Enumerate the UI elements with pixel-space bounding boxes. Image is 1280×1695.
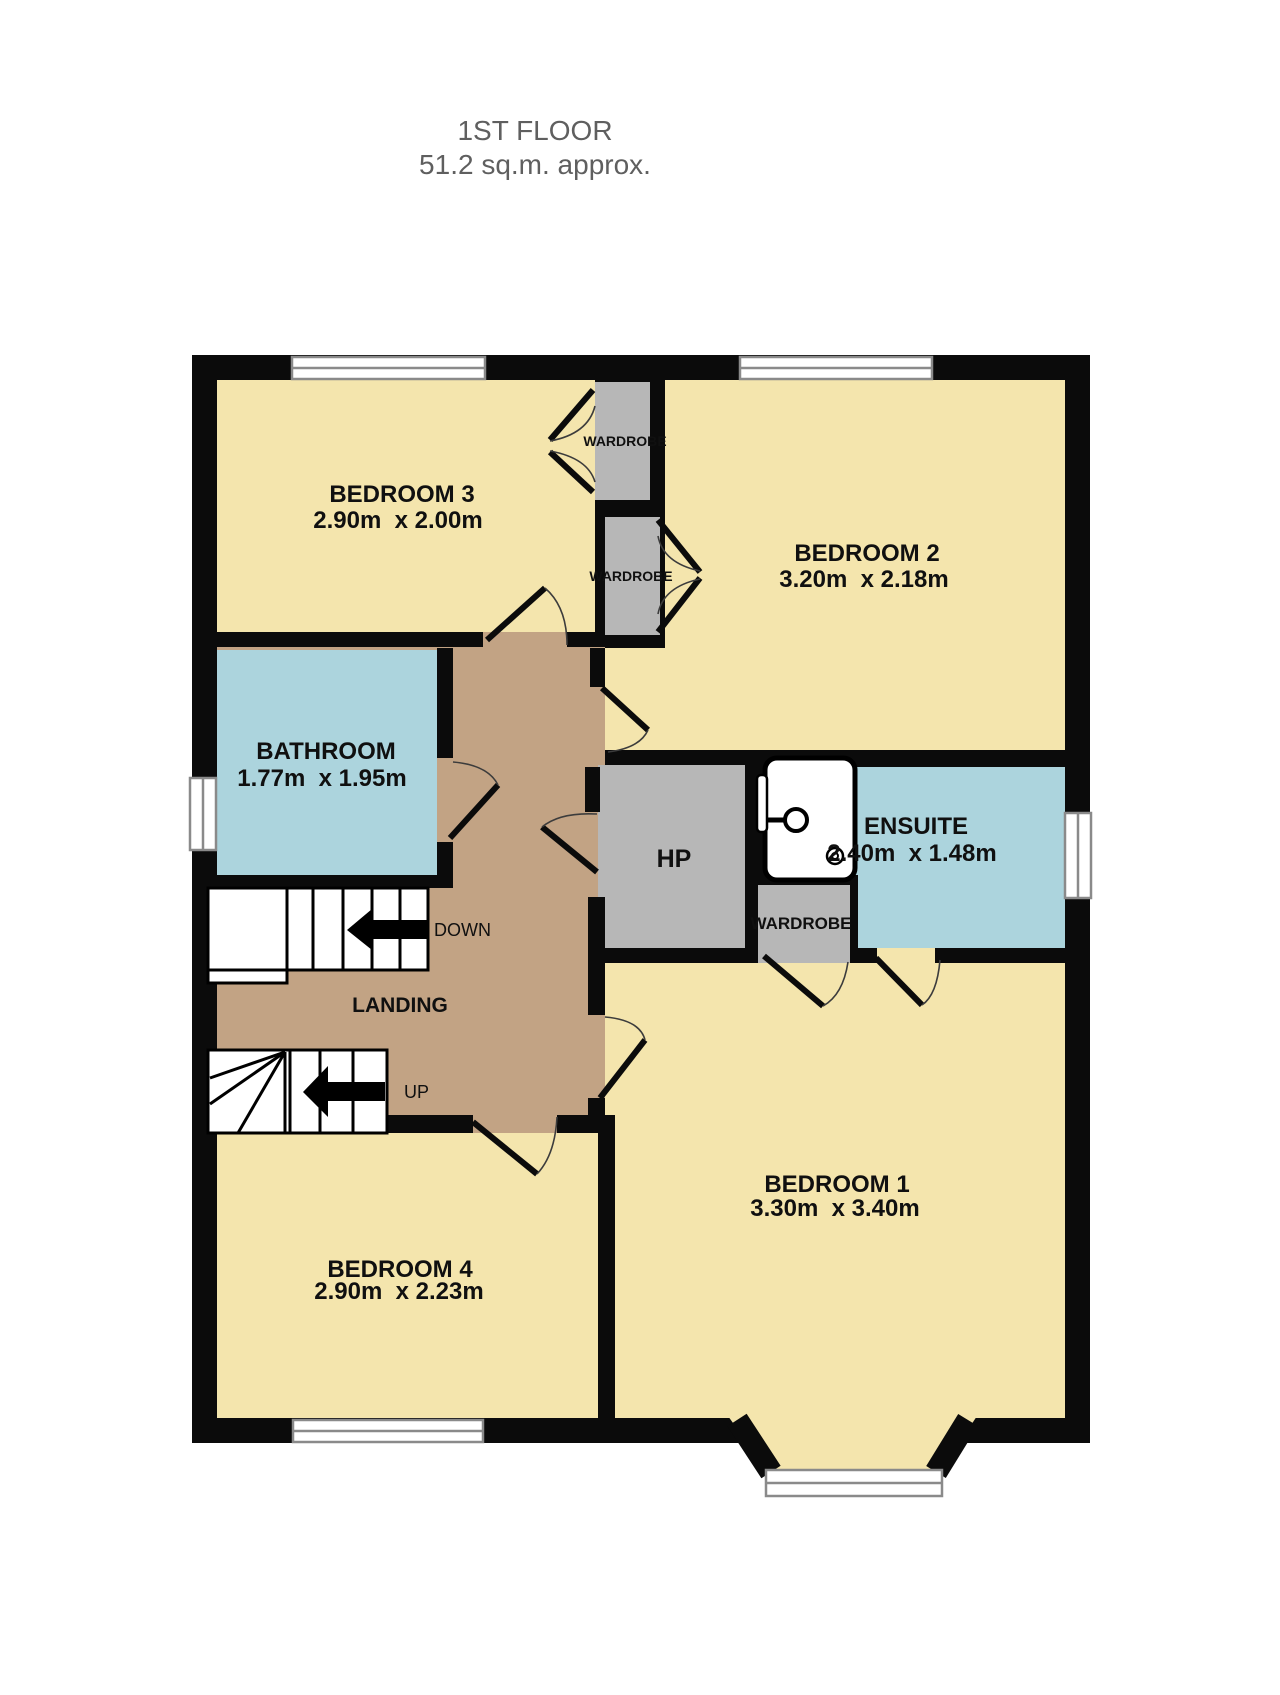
wall-segment: [588, 897, 605, 1015]
stairs-up-label: UP: [404, 1082, 429, 1102]
wall-segment: [585, 767, 600, 812]
wall-segment: [590, 648, 605, 687]
label-ensuite-dims: 2.40m x 1.48m: [827, 840, 996, 867]
label-wardrobe-bed1: WARDROBE: [750, 914, 851, 933]
wall-segment: [437, 648, 453, 758]
label-bedroom1-name: BEDROOM 1: [764, 1171, 909, 1198]
stairs-up-arrow-shaft: [328, 1082, 385, 1101]
wall-segment: [598, 1115, 615, 1418]
label-bedroom3-dims: 2.90m x 2.00m: [313, 507, 482, 534]
shower-door: [757, 775, 767, 832]
stairs-down-arrow-shaft: [372, 920, 428, 939]
label-wardrobe-top: WARDROBE: [583, 433, 666, 449]
floorplan-page: 1ST FLOOR 51.2 sq.m. approx.: [0, 0, 1280, 1690]
floorplan-canvas: 1ST FLOOR 51.2 sq.m. approx.: [0, 0, 1280, 1690]
wall-segment: [192, 875, 453, 888]
shower-head-icon: [785, 809, 807, 831]
label-ensuite-name: ENSUITE: [864, 813, 968, 840]
label-hp: HP: [657, 845, 692, 873]
floor-plan: DOWN UP: [190, 355, 1091, 1496]
doorway-bathroom: [437, 758, 453, 842]
plan-title-line1: 1ST FLOOR: [457, 115, 612, 146]
label-wardrobe-mid: WARDROBE: [589, 568, 672, 584]
wall-segment: [557, 1115, 605, 1133]
label-bedroom2-dims: 3.20m x 2.18m: [779, 566, 948, 593]
label-bedroom2-name: BEDROOM 2: [794, 540, 939, 567]
label-landing: LANDING: [352, 994, 448, 1017]
plan-title-line2: 51.2 sq.m. approx.: [419, 149, 651, 180]
label-bathroom-name: BATHROOM: [256, 738, 396, 765]
label-bathroom-dims: 1.77m x 1.95m: [237, 765, 406, 792]
doorway-ensuite: [877, 948, 935, 963]
stairs-down-label: DOWN: [434, 920, 491, 940]
label-bedroom4-dims: 2.90m x 2.23m: [314, 1278, 483, 1305]
stairs-down-step-edge: [208, 970, 287, 983]
label-bedroom1-dims: 3.30m x 3.40m: [750, 1195, 919, 1222]
wall-segment: [387, 1115, 473, 1133]
label-bedroom3-name: BEDROOM 3: [329, 481, 474, 508]
